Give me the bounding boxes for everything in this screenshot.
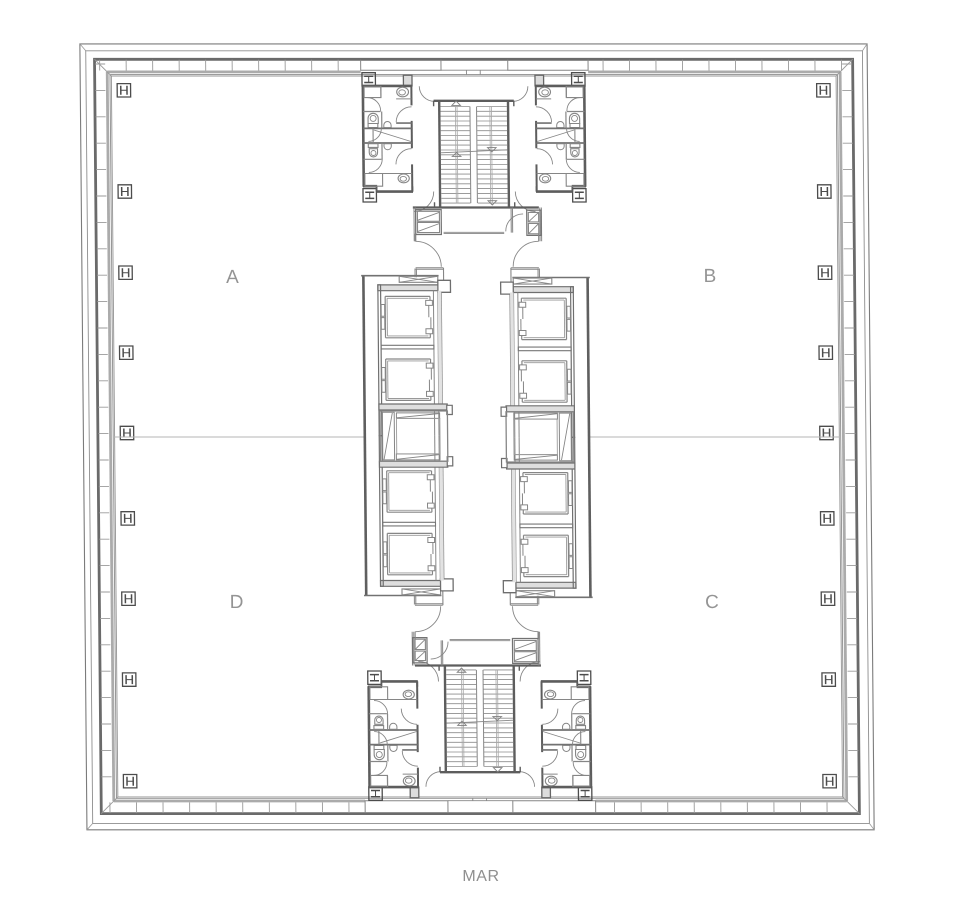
svg-text:C: C (705, 592, 719, 613)
svg-text:MAR: MAR (462, 868, 499, 885)
svg-text:A: A (226, 267, 239, 288)
svg-text:D: D (230, 592, 244, 613)
svg-text:B: B (704, 266, 717, 287)
